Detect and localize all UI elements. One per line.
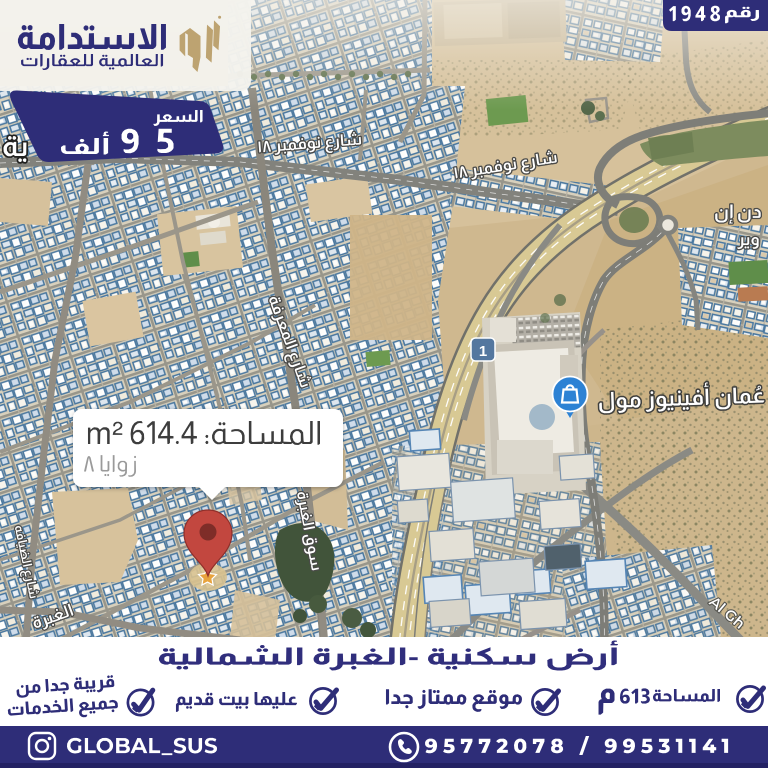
svg-text:1: 1	[479, 343, 487, 360]
